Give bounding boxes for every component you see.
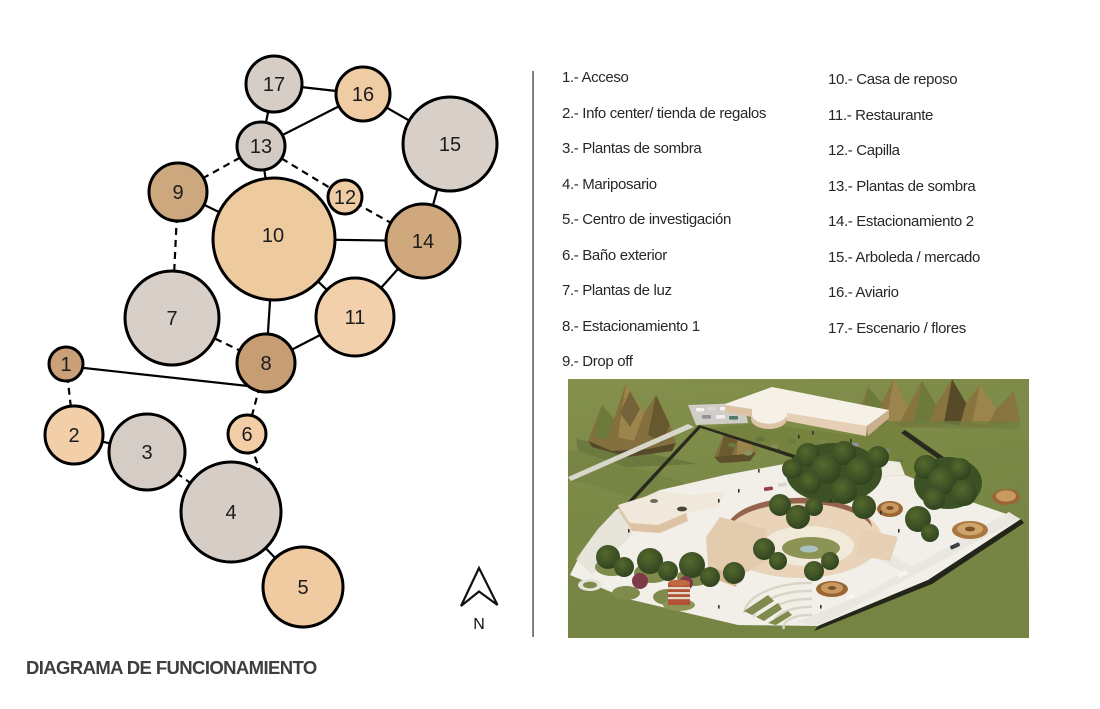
svg-text:8: 8 <box>260 353 271 375</box>
svg-text:17: 17 <box>263 74 285 96</box>
svg-text:13: 13 <box>250 136 272 158</box>
svg-text:5: 5 <box>297 577 308 599</box>
svg-text:12: 12 <box>334 187 356 209</box>
svg-text:2: 2 <box>68 425 79 447</box>
svg-text:11: 11 <box>345 307 366 329</box>
svg-text:15: 15 <box>439 134 461 156</box>
svg-text:4: 4 <box>225 502 236 524</box>
svg-text:9: 9 <box>172 182 183 204</box>
svg-text:7: 7 <box>166 308 177 330</box>
svg-text:16: 16 <box>352 84 374 106</box>
svg-text:1: 1 <box>60 354 71 376</box>
svg-text:14: 14 <box>412 231 434 253</box>
svg-text:N: N <box>473 616 485 633</box>
svg-text:10: 10 <box>262 225 284 247</box>
svg-text:6: 6 <box>241 424 252 446</box>
svg-text:3: 3 <box>141 442 152 464</box>
